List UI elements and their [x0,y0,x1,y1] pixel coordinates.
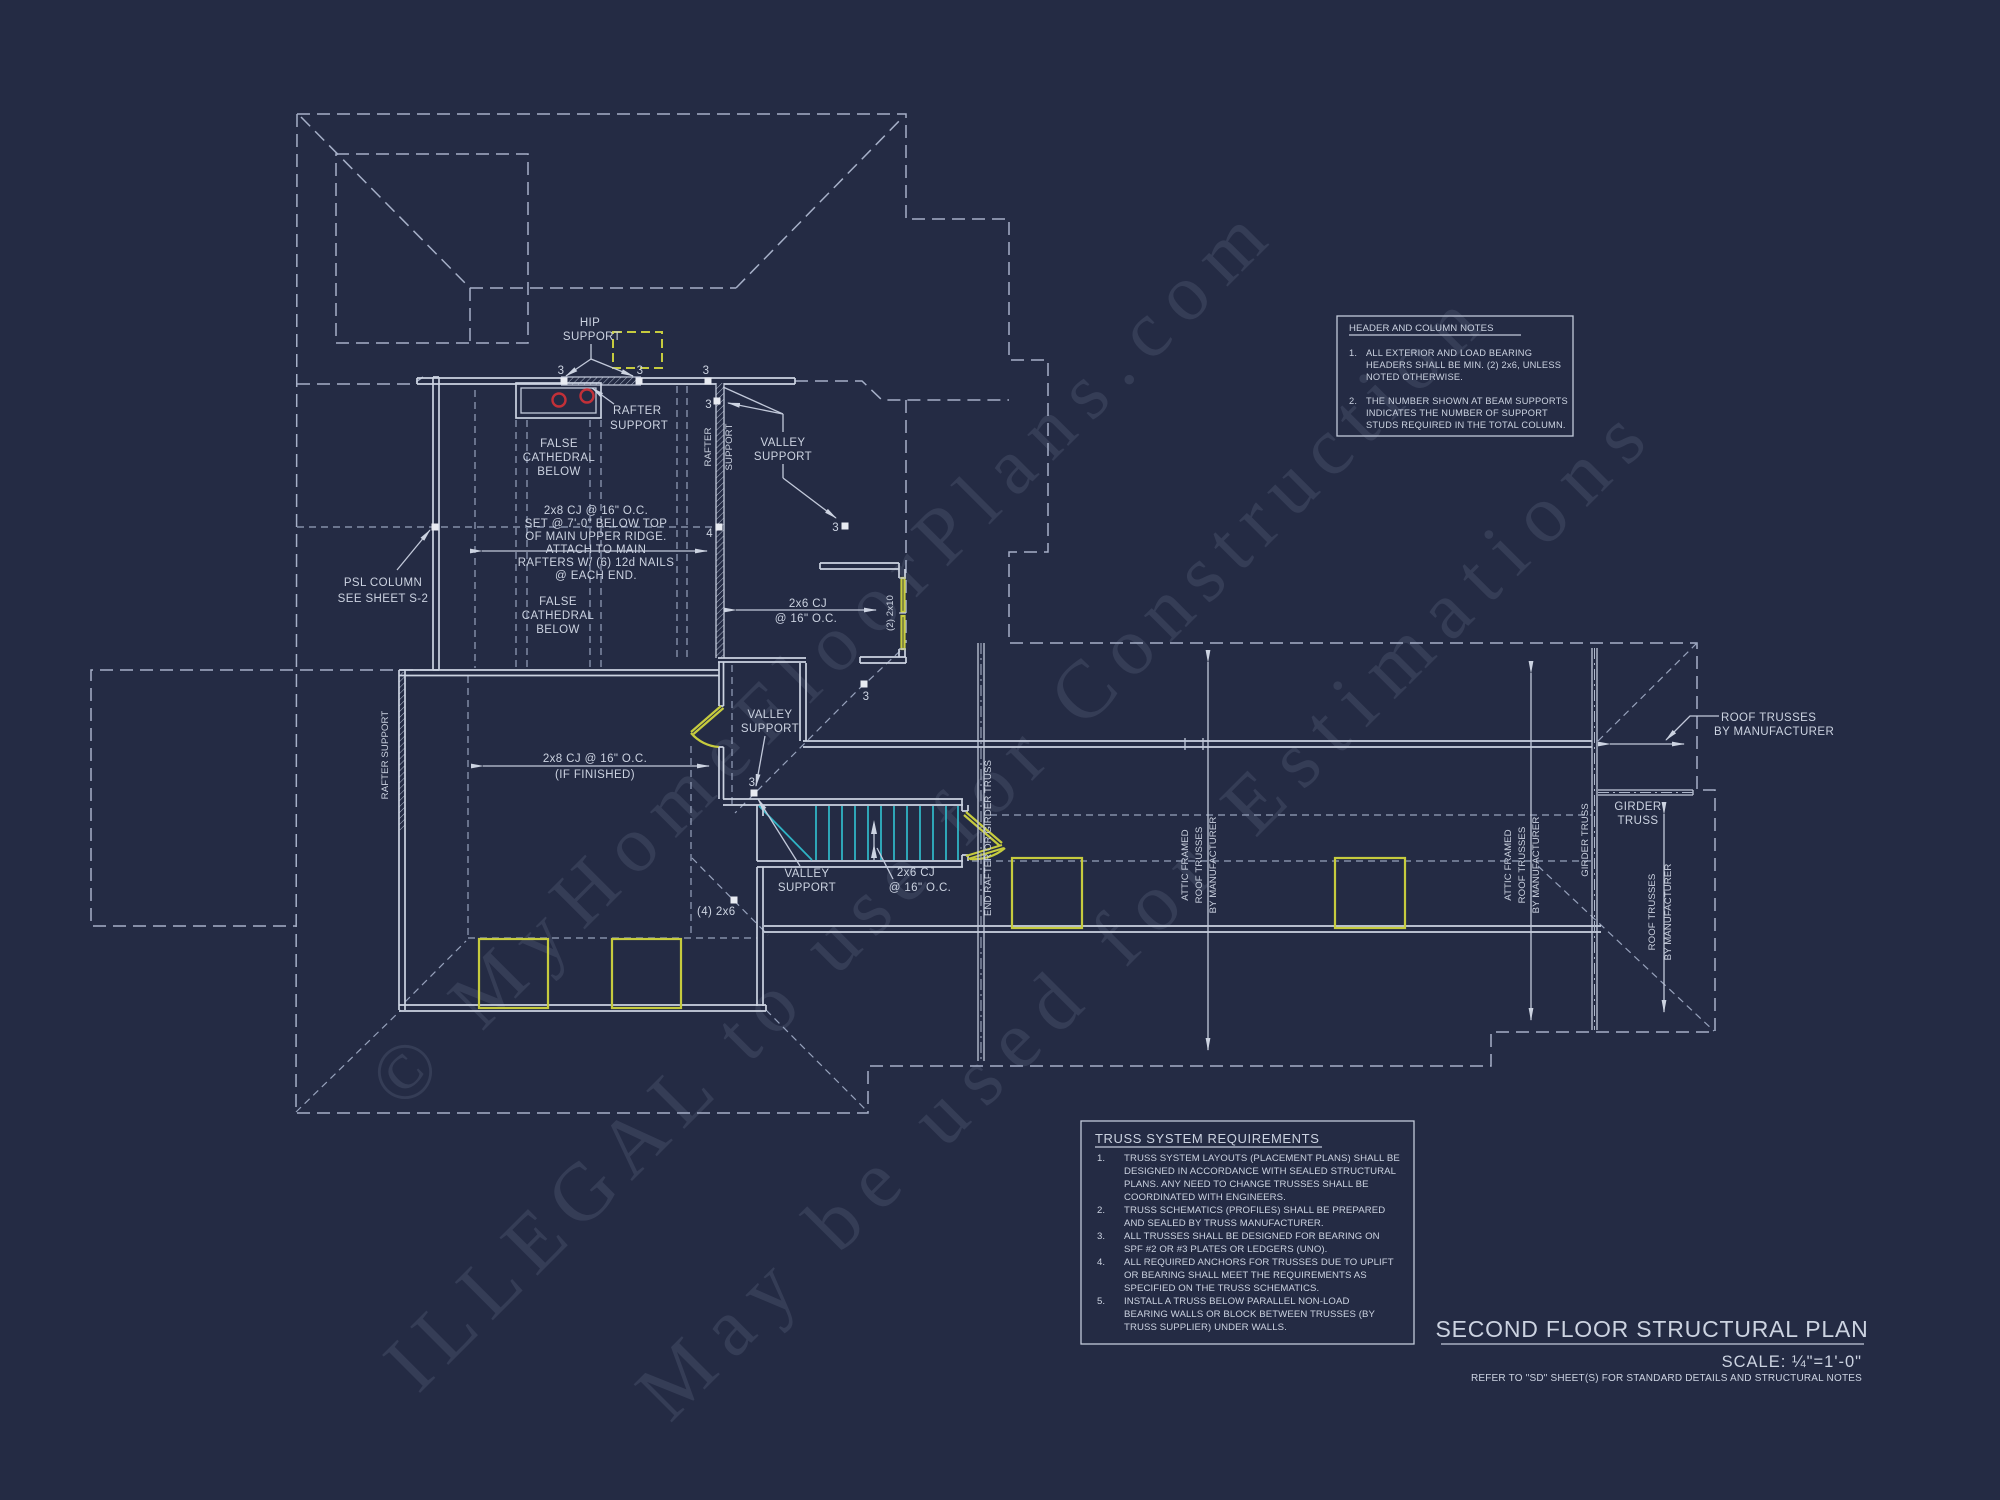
svg-text:RAFTER: RAFTER [613,405,661,417]
svg-text:3: 3 [705,399,712,411]
svg-text:ROOF TRUSSES: ROOF TRUSSES [1721,712,1816,724]
svg-text:OR BEARING SHALL MEET THE REQU: OR BEARING SHALL MEET THE REQUIREMENTS A… [1124,1270,1367,1281]
svg-text:SCALE: ¼"=1'-0": SCALE: ¼"=1'-0" [1722,1353,1862,1371]
svg-text:3: 3 [863,691,870,703]
svg-text:BY MANUFACTURER: BY MANUFACTURER [1208,817,1219,914]
svg-text:ATTIC FRAMED: ATTIC FRAMED [1503,829,1514,900]
svg-text:FALSE: FALSE [539,596,577,608]
svg-text:3: 3 [558,365,565,377]
svg-text:HIP: HIP [580,317,600,329]
svg-text:GIRDER: GIRDER [1614,801,1661,813]
svg-text:1.: 1. [1097,1153,1105,1164]
svg-text:TRUSS SYSTEM REQUIREMENTS: TRUSS SYSTEM REQUIREMENTS [1095,1131,1319,1146]
svg-text:CATHEDRAL: CATHEDRAL [523,452,596,464]
svg-text:VALLEY: VALLEY [784,868,829,880]
svg-text:SECOND FLOOR STRUCTURAL PLAN: SECOND FLOOR STRUCTURAL PLAN [1435,1316,1868,1342]
svg-text:ROOF TRUSSES: ROOF TRUSSES [1517,827,1528,904]
svg-text:GIRDER TRUSS: GIRDER TRUSS [1580,803,1591,877]
svg-text:SUPPORT: SUPPORT [563,331,621,343]
svg-text:PSL COLUMN: PSL COLUMN [344,577,422,589]
svg-text:SUPPORT: SUPPORT [741,723,799,735]
svg-text:3: 3 [703,365,710,377]
svg-text:BELOW: BELOW [536,624,580,636]
svg-text:RAFTER SUPPORT: RAFTER SUPPORT [380,711,391,800]
svg-text:VALLEY: VALLEY [760,437,805,449]
svg-text:RAFTER: RAFTER [703,428,714,467]
svg-text:(IF FINISHED): (IF FINISHED) [555,769,635,781]
svg-text:ROOF TRUSSES: ROOF TRUSSES [1647,874,1658,951]
svg-text:BY MANUFACTURER: BY MANUFACTURER [1714,726,1834,738]
svg-text:COORDINATED WITH ENGINEERS.: COORDINATED WITH ENGINEERS. [1124,1192,1286,1203]
svg-text:2x8 CJ @ 16" O.C.: 2x8 CJ @ 16" O.C. [544,505,648,517]
svg-text:ALL TRUSSES SHALL BE DESIGNED: ALL TRUSSES SHALL BE DESIGNED FOR BEARIN… [1124,1231,1380,1242]
svg-text:FALSE: FALSE [540,438,578,450]
svg-text:ALL EXTERIOR AND LOAD BEARING: ALL EXTERIOR AND LOAD BEARING [1366,348,1532,358]
svg-text:2x8 CJ @ 16" O.C.: 2x8 CJ @ 16" O.C. [543,753,647,765]
svg-text:VALLEY: VALLEY [747,709,792,721]
svg-text:AND SEALED BY TRUSS MANUFACTUR: AND SEALED BY TRUSS MANUFACTURER. [1124,1218,1324,1229]
svg-text:BY MANUFACTURER: BY MANUFACTURER [1531,817,1542,914]
svg-text:SET @ 7'-0" BELOW TOP: SET @ 7'-0" BELOW TOP [525,518,668,530]
svg-text:2.: 2. [1349,396,1357,406]
svg-text:ATTIC FRAMED: ATTIC FRAMED [1180,829,1191,900]
svg-text:DESIGNED IN ACCORDANCE WITH SE: DESIGNED IN ACCORDANCE WITH SEALED STRUC… [1124,1166,1397,1177]
svg-text:INSTALL A TRUSS BELOW PARALLEL: INSTALL A TRUSS BELOW PARALLEL NON-LOAD [1124,1296,1350,1307]
svg-text:3: 3 [749,777,756,789]
svg-text:ATTACH TO MAIN: ATTACH TO MAIN [546,544,647,556]
svg-text:1.: 1. [1349,348,1357,358]
svg-text:2x6 CJ: 2x6 CJ [897,867,935,879]
svg-text:SEE SHEET S-2: SEE SHEET S-2 [338,593,429,605]
svg-text:OF MAIN UPPER RIDGE.: OF MAIN UPPER RIDGE. [525,531,667,543]
svg-text:2x6 CJ: 2x6 CJ [789,598,827,610]
svg-text:@ 16" O.C.: @ 16" O.C. [889,882,952,894]
svg-text:BY MANUFACTURER: BY MANUFACTURER [1663,864,1674,961]
svg-text:REFER TO "SD" SHEET(S) FOR STA: REFER TO "SD" SHEET(S) FOR STANDARD DETA… [1471,1373,1862,1384]
svg-text:PLANS. ANY NEED TO CHANGE TRUS: PLANS. ANY NEED TO CHANGE TRUSSES SHALL … [1124,1179,1369,1190]
svg-text:5.: 5. [1097,1296,1105,1307]
svg-text:TRUSS: TRUSS [1618,815,1659,827]
svg-text:SUPPORT: SUPPORT [778,882,836,894]
svg-text:SUPPORT: SUPPORT [754,451,812,463]
svg-text:3: 3 [832,522,839,534]
svg-text:SUPPORT: SUPPORT [724,424,735,471]
svg-text:3.: 3. [1097,1231,1105,1242]
svg-text:STUDS REQUIRED IN THE TOTAL CO: STUDS REQUIRED IN THE TOTAL COLUMN. [1366,420,1566,430]
svg-text:3: 3 [637,365,644,377]
svg-text:HEADER AND COLUMN NOTES: HEADER AND COLUMN NOTES [1349,323,1494,334]
svg-text:4: 4 [706,528,713,540]
svg-text:BELOW: BELOW [537,466,581,478]
svg-text:CATHEDRAL: CATHEDRAL [522,610,595,622]
svg-text:@ EACH END.: @ EACH END. [555,570,637,582]
svg-text:RAFTERS W/ (6) 12d NAILS: RAFTERS W/ (6) 12d NAILS [518,557,675,569]
svg-text:END RAFTER OR GIRDER TRUSS: END RAFTER OR GIRDER TRUSS [983,760,994,916]
svg-text:2.: 2. [1097,1205,1105,1216]
svg-text:(4) 2x6: (4) 2x6 [697,906,736,918]
svg-text:SPECIFIED ON THE TRUSS SCHEMAT: SPECIFIED ON THE TRUSS SCHEMATICS. [1124,1283,1319,1294]
svg-text:TRUSS SCHEMATICS (PROFILES) SH: TRUSS SCHEMATICS (PROFILES) SHALL BE PRE… [1124,1205,1385,1216]
svg-text:TRUSS SYSTEM LAYOUTS (PLACEMEN: TRUSS SYSTEM LAYOUTS (PLACEMENT PLANS) S… [1124,1153,1400,1164]
svg-text:ALL REQUIRED ANCHORS FOR TRUSS: ALL REQUIRED ANCHORS FOR TRUSSES DUE TO … [1124,1257,1394,1268]
svg-text:@ 16" O.C.: @ 16" O.C. [775,613,838,625]
svg-text:SUPPORT: SUPPORT [610,420,668,432]
svg-text:4.: 4. [1097,1257,1105,1268]
svg-text:THE NUMBER SHOWN AT BEAM SUPPO: THE NUMBER SHOWN AT BEAM SUPPORTS [1366,396,1568,406]
svg-text:BEARING WALLS OR BLOCK BETWEEN: BEARING WALLS OR BLOCK BETWEEN TRUSSES (… [1124,1309,1376,1320]
svg-text:(2) 2x10: (2) 2x10 [885,595,896,631]
svg-text:HEADERS SHALL BE MIN. (2) 2x6,: HEADERS SHALL BE MIN. (2) 2x6, UNLESS [1366,360,1561,370]
svg-text:TRUSS SUPPLIER) UNDER WALLS.: TRUSS SUPPLIER) UNDER WALLS. [1124,1322,1287,1333]
svg-text:INDICATES THE NUMBER OF SUPPOR: INDICATES THE NUMBER OF SUPPORT [1366,408,1548,418]
svg-text:SPF #2 OR #3 PLATES OR LEDGERS: SPF #2 OR #3 PLATES OR LEDGERS (UNO). [1124,1244,1327,1255]
svg-text:ROOF TRUSSES: ROOF TRUSSES [1194,827,1205,904]
svg-text:NOTED OTHERWISE.: NOTED OTHERWISE. [1366,372,1463,382]
